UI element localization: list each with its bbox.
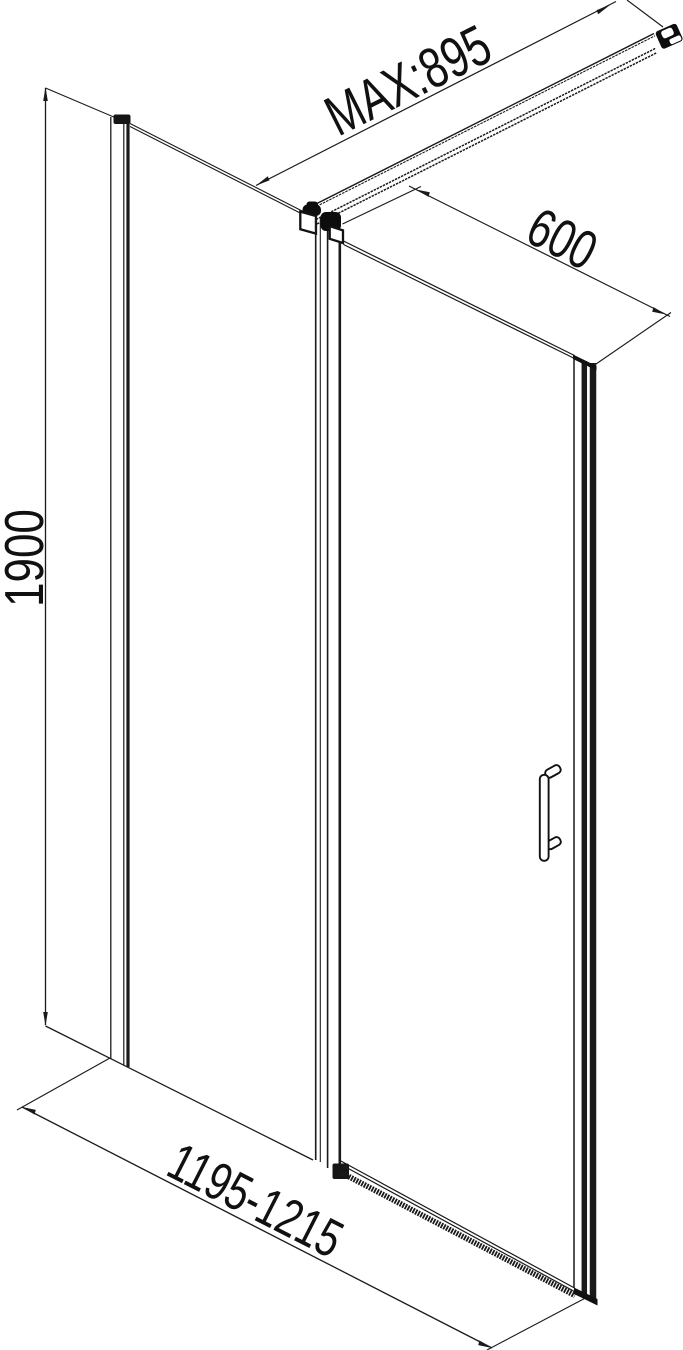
svg-text:1900: 1900: [0, 509, 55, 607]
